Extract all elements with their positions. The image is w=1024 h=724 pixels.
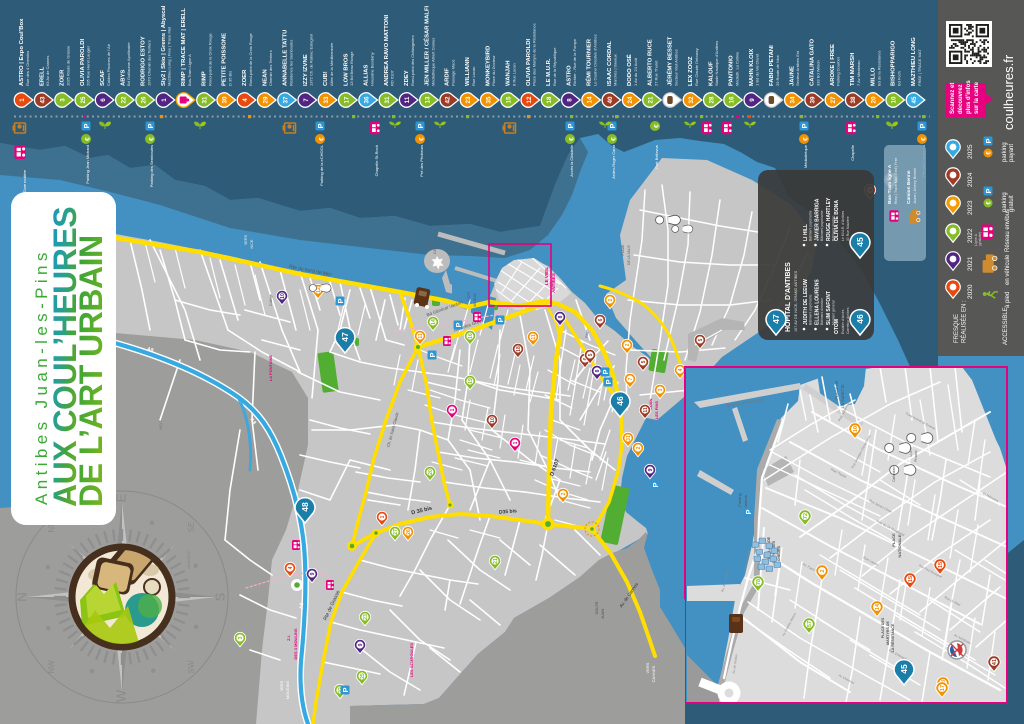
svg-text:DES 3 MOULINS: DES 3 MOULINS	[293, 628, 298, 659]
svg-text:4: 4	[288, 566, 294, 569]
svg-text:JÉRÉMY BESSET: JÉRÉMY BESSET	[666, 36, 674, 86]
svg-text:Musée: Musée	[909, 447, 913, 457]
svg-text:parking: parking	[1002, 142, 1008, 162]
svg-text:DE L’ART URBAIN: DE L’ART URBAIN	[73, 235, 109, 507]
svg-text:43: 43	[39, 96, 46, 103]
svg-text:29: 29	[262, 96, 269, 103]
svg-text:1: 1	[19, 98, 26, 102]
svg-text:PLAGE: PLAGE	[621, 244, 625, 256]
svg-text:BIOT: BIOT	[158, 420, 163, 430]
svg-text:Escalier d’accès: Escalier d’accès	[841, 309, 845, 334]
svg-text:MOUGINS: MOUGINS	[286, 680, 290, 699]
svg-text:40: 40	[607, 96, 614, 103]
svg-text:€: €	[569, 137, 576, 141]
svg-text:sur la carte: sur la carte	[974, 81, 980, 114]
svg-text:13: 13	[424, 96, 431, 103]
svg-text:Secteur Antibes Est: Secteur Antibes Est	[795, 50, 800, 86]
svg-text:15: 15	[908, 576, 914, 582]
svg-text:Cathédrale: Cathédrale	[892, 466, 896, 482]
svg-text:Bâtiment direction: Bâtiment direction	[820, 298, 824, 325]
svg-text:Bâtiment psychiatrie: Bâtiment psychiatrie	[820, 210, 824, 241]
svg-text:1025 Route de Grasse: 1025 Route de Grasse	[65, 45, 70, 86]
svg-text:205 Rue Henri Laugier: 205 Rue Henri Laugier	[86, 45, 91, 86]
svg-text:Bâtiment psychiatrie: Bâtiment psychiatrie	[809, 210, 813, 241]
svg-text:30 Rue Maizière: 30 Rue Maizière	[846, 216, 850, 241]
svg-text:€: €	[419, 137, 426, 141]
svg-text:6: 6	[598, 318, 604, 321]
svg-text:Houssine Bendahy: Houssine Bendahy	[369, 52, 374, 86]
svg-text:18: 18	[516, 346, 522, 352]
svg-text:Parking de la eCHOOL: Parking de la eCHOOL	[319, 144, 324, 186]
svg-text:ANTIBES: ANTIBES	[551, 273, 556, 293]
svg-text:Collège: Collège	[269, 294, 273, 306]
svg-text:21: 21	[493, 558, 499, 564]
svg-text:2: 2	[625, 343, 631, 346]
svg-text:21: 21	[647, 96, 654, 103]
svg-text:1: 1	[450, 408, 456, 411]
svg-text:20: 20	[870, 96, 877, 103]
svg-text:27: 27	[830, 96, 837, 103]
svg-text:48: 48	[300, 502, 310, 512]
svg-text:Médiath. La Colline: Médiath. La Colline	[734, 51, 739, 86]
svg-text:Bd Guillaume Apollinaire: Bd Guillaume Apollinaire	[126, 42, 131, 86]
svg-text:7: 7	[303, 98, 310, 102]
svg-text:1 Av du 24 Août: 1 Av du 24 Août	[633, 57, 638, 86]
svg-text:en véhicule: en véhicule	[1005, 254, 1011, 285]
svg-text:€: €	[611, 137, 618, 141]
svg-text:NATIONALE: NATIONALE	[897, 534, 902, 557]
svg-text:5: 5	[698, 338, 704, 341]
svg-text:12: 12	[526, 96, 533, 103]
svg-text:46: 46	[615, 396, 625, 406]
svg-text:1: 1	[380, 515, 386, 518]
svg-text:14: 14	[431, 319, 437, 325]
svg-text:333 Bd Wilson: 333 Bd Wilson	[815, 60, 820, 86]
svg-text:Rue Claude Debussy: Rue Claude Debussy	[694, 48, 699, 86]
svg-text:30: 30	[222, 96, 229, 103]
svg-text:Le M.U.R. d’Antibes: Le M.U.R. d’Antibes	[841, 211, 845, 241]
svg-text:FRESQUE: FRESQUE	[954, 314, 960, 343]
svg-text:23: 23	[465, 96, 472, 103]
svg-text:Scannez et: Scannez et	[950, 83, 956, 114]
svg-text:38: 38	[850, 96, 857, 103]
svg-text:42: 42	[445, 96, 452, 103]
svg-text:Gare routière: Gare routière	[23, 170, 27, 192]
svg-text:ACCESSIBLE: ACCESSIBLE	[1003, 307, 1009, 345]
svg-text:13 Bd Beau Rivage: 13 Bd Beau Rivage	[349, 51, 354, 86]
svg-text:8: 8	[566, 98, 573, 102]
svg-text:Chapelle St-Roch: Chapelle St-Roch	[374, 145, 379, 176]
svg-text:RD 6107: RD 6107	[390, 69, 395, 86]
svg-text:10: 10	[891, 96, 898, 103]
svg-text:PORT: PORT	[467, 290, 471, 301]
svg-text:11: 11	[531, 334, 537, 340]
svg-text:Jaune | Jérémy Besset: Jaune | Jérémy Besset	[913, 168, 917, 204]
svg-text:VERS: VERS	[244, 234, 248, 245]
svg-text:LES SEMBOULES: LES SEMBOULES	[409, 643, 414, 678]
svg-text:Picasso: Picasso	[914, 450, 918, 461]
svg-text:31: 31	[384, 96, 391, 103]
svg-text:LA GARETTE: LA GARETTE	[841, 384, 845, 408]
svg-text:14: 14	[875, 603, 881, 610]
svg-text:Arden-Roger Carat: Arden-Roger Carat	[611, 144, 616, 179]
svg-text:PLACE: PLACE	[891, 533, 896, 547]
svg-text:25: 25	[360, 673, 366, 679]
svg-text:34: 34	[789, 96, 796, 103]
svg-text:(gratuite): (gratuite)	[978, 232, 982, 246]
svg-text:W: W	[113, 689, 128, 702]
svg-text:57: 57	[807, 621, 813, 627]
svg-text:€: €	[921, 137, 928, 141]
svg-text:Réseau envibus: Réseau envibus	[1005, 209, 1011, 252]
svg-text:Place des Martyrs de la Résist: Place des Martyrs de la Résistance	[532, 23, 537, 86]
svg-text:29 Route de Nice: 29 Route de Nice	[775, 54, 780, 86]
svg-text:41: 41	[992, 659, 998, 665]
svg-text:31: 31	[626, 435, 632, 441]
svg-text:plus d’infos: plus d’infos	[966, 80, 972, 114]
svg-text:45: 45	[911, 96, 918, 103]
svg-text:€: €	[654, 124, 661, 128]
svg-text:46: 46	[855, 314, 865, 324]
svg-text:Bâtiment psychiatrie: Bâtiment psychiatrie	[809, 294, 813, 325]
svg-text:27: 27	[393, 529, 399, 535]
svg-text:15: 15	[506, 96, 513, 103]
svg-text:PLACE DES: PLACE DES	[881, 617, 885, 638]
svg-text:€: €	[319, 137, 326, 141]
svg-text:9: 9	[310, 572, 316, 575]
svg-text:47: 47	[771, 314, 781, 324]
svg-text:Le Casino Créative d’Antibes: Le Casino Créative d’Antibes	[592, 34, 597, 86]
svg-text:37: 37	[283, 96, 290, 103]
svg-text:35: 35	[485, 96, 492, 103]
svg-text:2020: 2020	[967, 284, 974, 299]
svg-text:39: 39	[810, 96, 817, 103]
svg-text:RÉALISÉE EN :: RÉALISÉE EN :	[961, 300, 968, 343]
svg-text:6: 6	[100, 98, 107, 102]
svg-text:2: 2	[820, 569, 826, 572]
svg-text:33: 33	[323, 96, 330, 103]
svg-text:LA FONTAINE: LA FONTAINE	[268, 354, 273, 381]
svg-text:23: 23	[363, 614, 369, 620]
svg-text:Parking des Semboules: Parking des Semboules	[149, 145, 154, 187]
svg-text:22: 22	[120, 96, 127, 103]
svg-text:Rue Lacan: Rue Lacan	[471, 67, 476, 86]
svg-text:45: 45	[855, 237, 865, 247]
svg-text:Parking: Parking	[737, 493, 742, 507]
svg-text:8 Rue Lacan: 8 Rue Lacan	[511, 63, 516, 86]
svg-text:VERS: VERS	[645, 662, 650, 673]
svg-text:payant: payant	[1009, 144, 1015, 162]
svg-text:DE LA SALIS: DE LA SALIS	[627, 244, 631, 264]
svg-text:1372 Ch. de Rabiac Estagnol: 1372 Ch. de Rabiac Estagnol	[309, 34, 314, 86]
svg-text:107 AV DE NICE, GRAND ANTIBES: 107 AV DE NICE, GRAND ANTIBES	[794, 270, 798, 332]
svg-text:découvrez: découvrez	[958, 84, 964, 114]
svg-text:Bd Foch: Bd Foch	[897, 71, 902, 86]
svg-text:1 Bd du Val Claret: 1 Bd du Val Claret	[755, 53, 760, 86]
svg-text:Rond-point de la Croix Rouge: Rond-point de la Croix Rouge	[248, 33, 253, 86]
svg-text:5: 5	[641, 360, 647, 363]
svg-text:Rue de la République: Rue de la République	[552, 47, 557, 86]
svg-text:Camion Benne: Camion Benne	[906, 170, 912, 204]
svg-text:LES PINS: LES PINS	[654, 401, 659, 420]
svg-text:7: 7	[628, 377, 634, 380]
svg-text:SW: SW	[187, 660, 196, 673]
svg-text:45: 45	[899, 664, 909, 674]
svg-text:OTOM: OTOM	[834, 319, 840, 334]
svg-text:Bd de la Résistance: Bd de la Résistance	[876, 50, 881, 86]
svg-text:CANNES: CANNES	[651, 665, 656, 682]
svg-text:SE: SE	[187, 522, 196, 533]
svg-text:NW: NW	[47, 660, 56, 674]
svg-text:1: 1	[161, 98, 168, 102]
svg-text:10: 10	[490, 417, 496, 423]
svg-text:FREE | TRACE MAT: FREE | TRACE MAT	[917, 49, 922, 86]
svg-text:63 Av de Cannes: 63 Av de Cannes	[45, 56, 50, 86]
svg-text:Caldea Piscines de l’Air: Caldea Piscines de l’Air	[106, 43, 111, 86]
svg-text:11: 11	[404, 96, 411, 103]
svg-text:Marchés | travaux: Marchés | travaux	[613, 54, 618, 86]
svg-text:31: 31	[201, 96, 208, 103]
svg-text:28: 28	[708, 96, 715, 103]
svg-text:Z.I.: Z.I.	[286, 635, 291, 641]
svg-text:Parking Courbet: Parking Courbet	[836, 56, 841, 86]
svg-text:Stade Nautique d’Antibes: Stade Nautique d’Antibes	[714, 41, 719, 86]
svg-text:Rond-point des Châtaigniers: Rond-point des Châtaigniers	[410, 35, 415, 86]
svg-text:11: 11	[643, 407, 649, 413]
svg-text:14: 14	[587, 96, 594, 103]
svg-text:Port Bellevue: Port Bellevue	[654, 144, 659, 169]
svg-text:OLIVIA DE BONA: OLIVIA DE BONA	[834, 200, 840, 241]
svg-text:Parking Jean Michard: Parking Jean Michard	[85, 145, 90, 184]
svg-text:11: 11	[418, 333, 424, 339]
svg-text:Passage Macé: Passage Macé	[451, 59, 456, 86]
svg-text:10: 10	[280, 293, 286, 299]
svg-text:D 35 Bis: D 35 Bis	[228, 71, 233, 86]
svg-text:JUAN: JUAN	[601, 609, 605, 620]
svg-text:17: 17	[940, 685, 946, 691]
svg-text:24: 24	[627, 96, 634, 103]
svg-text:Rimp | Trace Mat | Erell | Fre: Rimp | Trace Mat | Erell | Free	[894, 157, 898, 204]
svg-text:Accès la Citadelle: Accès la Citadelle	[569, 144, 574, 177]
svg-text:Résidence les Semboules: Résidence les Semboules	[288, 40, 293, 86]
svg-text:Bus-Tram ligne A: Bus-Tram ligne A	[887, 164, 893, 204]
svg-text:3: 3	[238, 636, 244, 639]
svg-text:8: 8	[558, 315, 564, 318]
svg-text:PLAGE DE: PLAGE DE	[835, 380, 839, 399]
svg-text:2025: 2025	[967, 144, 974, 159]
svg-text:Chemin des Terriers: Chemin des Terriers	[268, 50, 273, 86]
svg-text:27 Rue Thuret: 27 Rue Thuret	[653, 60, 658, 86]
svg-text:Médiathèque Albert Camus: Médiathèque Albert Camus	[430, 38, 435, 86]
svg-text:Bus-Tram Ligne A: Bus-Tram Ligne A	[187, 54, 192, 86]
svg-text:17: 17	[343, 96, 350, 103]
svg-text:10: 10	[853, 426, 859, 432]
svg-text:7 Av Mirabeau: 7 Av Mirabeau	[856, 61, 861, 87]
svg-text:1: 1	[513, 441, 519, 444]
svg-text:€: €	[149, 137, 156, 141]
svg-text:16: 16	[468, 333, 474, 339]
svg-text:4: 4	[242, 98, 249, 102]
svg-text:2022: 2022	[967, 228, 974, 243]
svg-text:Allée de la Méditerranée: Allée de la Méditerranée	[329, 42, 334, 86]
svg-text:VERS: VERS	[280, 680, 284, 691]
svg-text:DODO OSÉ: DODO OSÉ	[625, 54, 633, 86]
svg-text:RÉMI TOURNIER: RÉMI TOURNIER	[585, 38, 593, 86]
svg-text:Rue des 4 Chemins: Rue des 4 Chemins	[25, 51, 30, 86]
svg-text:GOLFE: GOLFE	[595, 601, 599, 615]
svg-text:9: 9	[648, 468, 654, 471]
svg-text:A8: A8	[299, 602, 306, 609]
svg-text:2024: 2024	[967, 172, 974, 187]
svg-text:15: 15	[938, 562, 944, 568]
svg-text:VAUBAN: VAUBAN	[473, 292, 477, 307]
svg-text:4: 4	[678, 368, 684, 371]
svg-text:2021: 2021	[967, 256, 974, 271]
svg-text:coulheures.fr: coulheures.fr	[1001, 54, 1016, 130]
svg-text:Ma2thieu Long | Free | Trace M: Ma2thieu Long | Free | Trace Mat	[167, 26, 172, 86]
svg-text:CARRÉ: CARRÉ	[432, 241, 437, 254]
svg-text:Pré des Pêcheurs: Pré des Pêcheurs	[419, 145, 424, 177]
svg-text:Rond-point de la Croix Rouge: Rond-point de la Croix Rouge	[207, 33, 212, 86]
svg-text:Médiathèque: Médiathèque	[803, 144, 808, 168]
svg-text:JEN MILLER / CÉSAR MALFI: JEN MILLER / CÉSAR MALFI	[422, 5, 430, 86]
svg-text:LE PORT: LE PORT	[427, 235, 431, 251]
svg-text:1970 Chemin des Terriers: 1970 Chemin des Terriers	[146, 40, 151, 86]
svg-text:€: €	[803, 137, 810, 141]
svg-text:9: 9	[358, 643, 364, 646]
svg-text:26: 26	[141, 96, 148, 103]
svg-text:2: 2	[608, 298, 614, 301]
svg-text:Chapelle: Chapelle	[850, 144, 855, 161]
svg-text:N: N	[14, 592, 29, 601]
svg-text:MARTYRS DE: MARTYRS DE	[886, 621, 890, 645]
svg-text:à pied: à pied	[1005, 292, 1011, 308]
svg-text:26: 26	[406, 529, 412, 535]
svg-text:36: 36	[364, 96, 371, 103]
svg-text:20: 20	[428, 469, 434, 475]
svg-text:18: 18	[546, 96, 553, 103]
svg-text:72: 72	[803, 513, 809, 519]
svg-text:9: 9	[749, 98, 756, 102]
svg-text:2: 2	[561, 492, 567, 495]
svg-text:2: 2	[636, 446, 642, 449]
svg-text:S: S	[212, 592, 227, 601]
svg-text:19: 19	[468, 378, 474, 384]
svg-text:Secteur Vieil Antibes: Secteur Vieil Antibes	[674, 49, 679, 86]
svg-text:3: 3	[658, 388, 664, 391]
svg-text:€: €	[85, 137, 92, 141]
svg-text:25: 25	[80, 96, 87, 103]
svg-text:LE VIEIL: LE VIEIL	[544, 267, 549, 286]
svg-text:NICE: NICE	[250, 239, 254, 249]
svg-text:78: 78	[756, 579, 762, 585]
svg-text:Richter - Rue de la Pompe: Richter - Rue de la Pompe	[572, 38, 577, 86]
svg-text:32: 32	[688, 96, 695, 103]
svg-text:16: 16	[729, 96, 736, 103]
svg-text:VALBONNE: VALBONNE	[187, 550, 191, 569]
svg-text:Place du Docteur: Place du Docteur	[491, 55, 496, 86]
svg-text:2023: 2023	[967, 200, 974, 215]
svg-text:Plage: Plage	[585, 330, 589, 338]
svg-text:47: 47	[340, 332, 350, 342]
svg-text:5: 5	[588, 353, 594, 356]
svg-text:3: 3	[60, 98, 67, 102]
